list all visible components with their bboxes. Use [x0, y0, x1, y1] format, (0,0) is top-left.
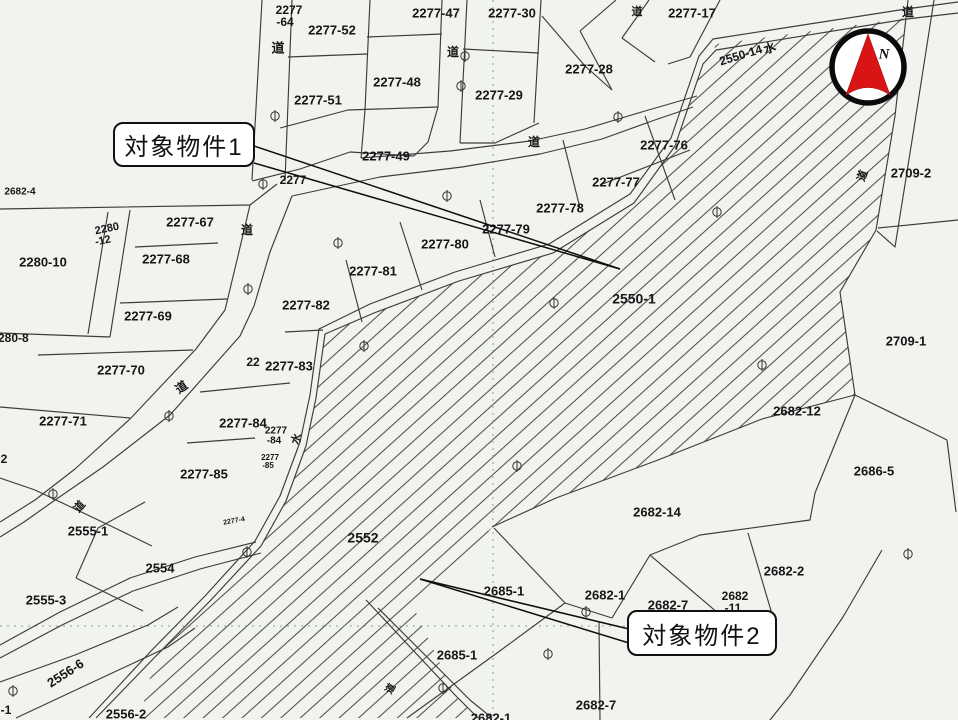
parcel-label: 2277-79 [482, 221, 530, 236]
parcel-label: 2277 [280, 173, 307, 187]
parcel-label: 2682-1 [585, 587, 625, 602]
parcel-label: 2682-2 [764, 563, 804, 578]
parcel-label: 2277-48 [373, 74, 421, 89]
parcel-label: 2277-85 [180, 466, 228, 481]
parcel-label: 2552 [347, 530, 378, 546]
parcel-label: 2686-5 [854, 463, 894, 478]
parcel-label: 2682-4 [4, 187, 36, 198]
road-label: 道 [902, 4, 914, 19]
parcel-label: 2555-1 [68, 523, 108, 538]
parcel-label: 2550-1 [612, 291, 656, 307]
road-label: 道 [447, 44, 459, 59]
parcel-label: 2277-29 [475, 87, 523, 102]
parcel-label: 2277-28 [565, 61, 613, 76]
parcel-label: 2277-52 [308, 22, 356, 37]
parcel-label: 2682-14 [633, 504, 681, 519]
parcel-label: 2 [1, 452, 8, 466]
parcel-label: 2555-3 [26, 592, 66, 607]
parcel-label: 2277-49 [362, 148, 410, 163]
parcel-label: 2709-2 [891, 165, 931, 180]
parcel-label: 2280-10 [19, 254, 67, 269]
parcel-label: 2277-17 [668, 5, 716, 20]
parcel-label: 2554 [146, 560, 176, 575]
parcel-label: 2277-30 [488, 5, 536, 20]
compass-n-label: N [878, 46, 891, 62]
road-label: 道 [271, 40, 284, 55]
parcel-label: 2682-1 [471, 710, 511, 720]
parcel-label: 2685-1 [484, 583, 524, 598]
parcel-label: -85 [262, 461, 274, 470]
compass-north-icon: N [832, 31, 904, 103]
parcel-label: 2277-68 [142, 251, 190, 266]
parcel-label: 2556-2 [106, 706, 146, 720]
road-label: 道 [241, 222, 253, 237]
callout-property-2-label: 対象物件2 [642, 616, 761, 651]
parcel-label: 2277-69 [124, 308, 172, 323]
parcel-label: 2277-77 [592, 174, 640, 189]
callout-property-1: 対象物件1 [113, 122, 255, 167]
parcel-label: 2277-70 [97, 362, 145, 377]
parcel-label: 2277-82 [282, 297, 330, 312]
parcel-label: 22 [246, 355, 260, 369]
parcel-label: -1 [1, 703, 12, 717]
parcel-label: 2277-81 [349, 263, 397, 278]
parcel-label: 2280-8 [0, 331, 29, 345]
parcel-label: 2685-1 [437, 647, 477, 662]
callout-property-2: 対象物件2 [627, 610, 777, 656]
parcel-label: 2277-80 [421, 236, 469, 251]
parcel-label: 2277-51 [294, 92, 342, 107]
parcel-label: 2682-12 [773, 403, 821, 418]
callout-property-1-label: 対象物件1 [124, 127, 243, 162]
parcel-label: -64 [276, 15, 294, 29]
parcel-label: 2277-78 [536, 200, 584, 215]
cadastral-map-svg: 2277-642277-522277-47道2277-482277-512277… [0, 0, 958, 720]
parcel-label: -84 [267, 436, 282, 447]
parcel-label: 2277-76 [640, 137, 688, 152]
map-canvas: 2277-642277-522277-47道2277-482277-512277… [0, 0, 958, 720]
road-label: 道 [632, 4, 643, 18]
parcel-label: 2682-7 [576, 697, 616, 712]
parcel-label: 2277-84 [219, 415, 267, 430]
parcel-label: 2709-1 [886, 333, 926, 348]
parcel-label: 2277-71 [39, 413, 87, 428]
road-label: 道 [528, 134, 540, 149]
parcel-label: 2277-67 [166, 214, 214, 229]
parcel-label: 2277-83 [265, 358, 313, 373]
parcel-label: 2277-47 [412, 5, 460, 20]
